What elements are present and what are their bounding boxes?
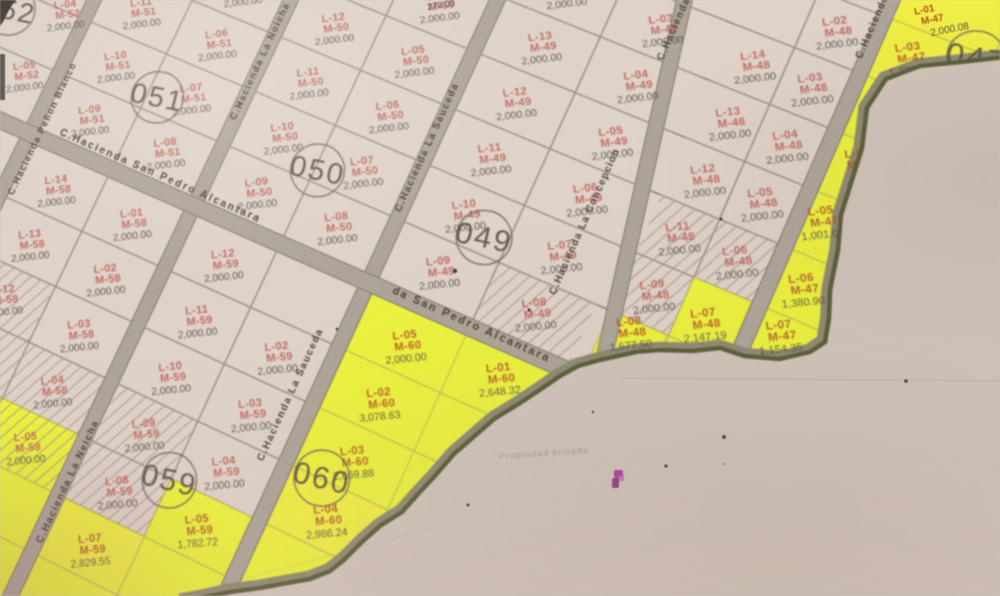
svg-text:M-47: M-47 [846, 157, 876, 172]
